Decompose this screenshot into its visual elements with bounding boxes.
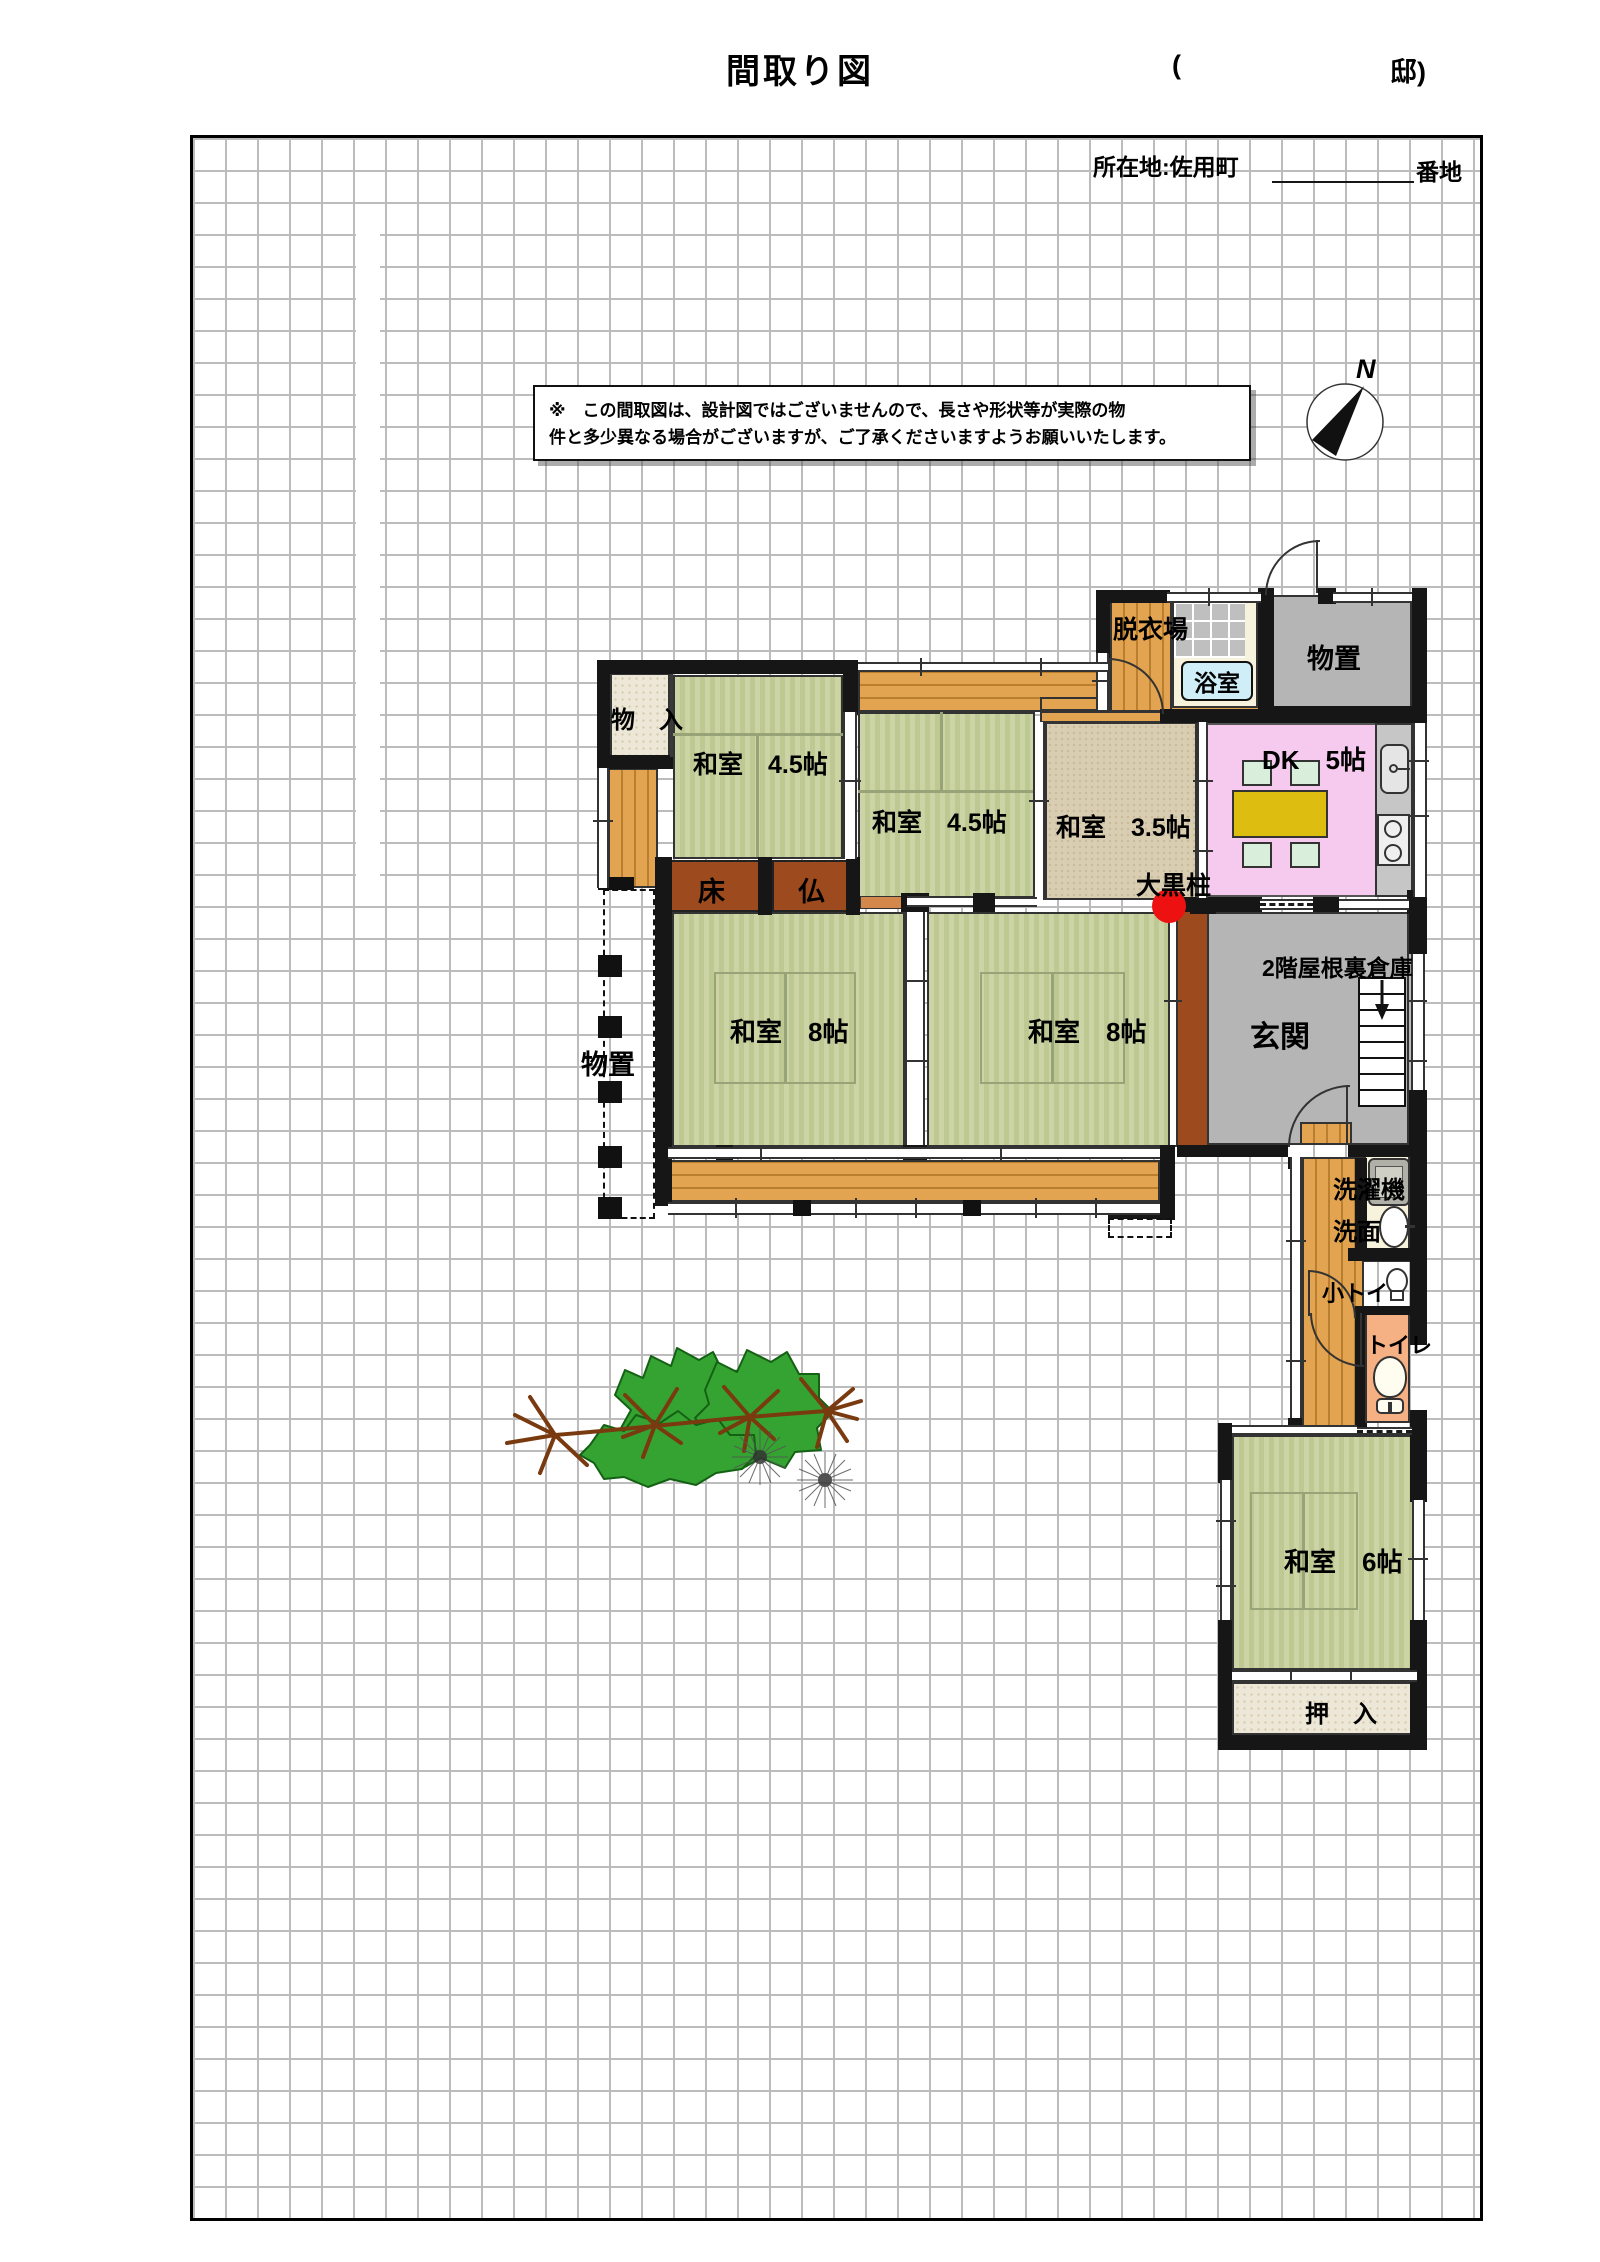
tick [1286,1360,1306,1362]
room-label-genkan: 玄関 [1250,1012,1310,1056]
toilet-bowl-icon [1373,1356,1407,1398]
tatami-mat-line [858,790,1035,793]
sink-faucet-arm [1398,768,1410,770]
door-leaf [1316,540,1318,593]
window-band [1232,1425,1357,1435]
sliding-door-band [995,897,1037,907]
banchi-label: 番地 [1416,153,1462,187]
compass: N [1300,350,1396,468]
room-label-washitsu6: 和室 6帖 [1284,1542,1402,1579]
sliding-door-band [1033,722,1045,900]
window-band [1413,723,1427,897]
sliding-door-band [1168,912,1178,1145]
room-label-text: 浴室 [1194,664,1240,698]
wall-segment [1410,1435,1427,1502]
wall-segment [1348,1145,1412,1157]
tick [1286,1240,1306,1242]
post [963,1200,981,1216]
door-sill [860,896,907,909]
tick [1371,588,1373,606]
label-butsudan: 仏 [798,870,825,909]
tick [1409,815,1429,817]
room-label-washitsu45-a: 和室 4.5帖 [693,745,828,781]
label-tokonoma: 床 [698,870,725,909]
sliding-door-band [907,896,973,907]
tick [735,1198,737,1218]
label-senmen: 洗面 [1333,1212,1381,1247]
floor-wood-strip-left [608,768,658,888]
grid-gap [356,230,380,895]
sliding-door-band [843,712,857,859]
tick [1407,1060,1427,1062]
door-leaf [1308,1270,1310,1316]
room-label-washitsu45-b: 和室 4.5帖 [872,803,1007,839]
wall-segment [973,893,995,912]
tick [915,1198,917,1218]
wall-segment [1096,590,1110,662]
window-band [1290,1157,1302,1418]
genkan-step-strip [1177,912,1207,1145]
window-band [597,768,609,888]
wall-segment [1410,1410,1427,1437]
wall-segment [1409,897,1427,954]
tick [1409,760,1429,762]
room-label-oshiire: 押 入 [1305,1694,1377,1729]
wall-segment [597,660,843,674]
room-label-washitsu8-a: 和室 8帖 [730,1012,848,1049]
owner-paren-open: ( [1172,50,1181,81]
veranda [668,1160,1160,1202]
address-blank-underline [1272,181,1414,183]
wall-segment [1410,1620,1427,1750]
sliding-door-dashes [1357,1430,1412,1433]
window-band [858,662,1108,672]
tick [1095,1198,1097,1218]
disclaimer-box: ※ この間取図は、設計図ではございませんので、長さや形状等が実際の物 件と多少異… [533,385,1251,461]
label-kotoilet: 小トイ [1322,1276,1388,1308]
tick [1000,1145,1002,1161]
window-band [1167,592,1261,603]
urinal-base [1390,1290,1404,1301]
chair [1242,842,1272,868]
page-title: 間取り図 [0,44,1600,93]
tick [855,1198,857,1218]
dining-table [1232,790,1328,838]
garden-trees-icon [495,1335,865,1510]
room-label-dk: DK 5帖 [1262,740,1366,777]
tatami-mat-line [940,712,943,792]
wall-segment [1218,1735,1427,1750]
window-band [1411,954,1425,1090]
room-label-yokushitsu: 浴室 [1181,661,1253,701]
window-band [1412,1500,1425,1620]
chair [1290,842,1320,868]
wall-segment [597,660,610,770]
wall-segment [1313,897,1339,912]
stove-burner-icon [1384,820,1402,838]
sink-faucet-icon [1389,764,1398,773]
tick [1350,1668,1352,1684]
room-label-toilet: トイレ [1366,1328,1432,1360]
tick [903,1060,927,1062]
tick [1408,1558,1428,1560]
label-daikokubashira: 大黒柱 [1136,866,1211,902]
disclaimer-line2: 件と多少異なる場合がございますが、ご了承くださいますようお願いいたします。 [549,424,1235,451]
wall-segment [843,660,858,715]
sliding-door-band [1232,1670,1417,1682]
toilet-tank-mark [1388,1402,1392,1412]
tick [1216,1520,1236,1522]
tick [903,980,927,982]
door-leaf [1360,1313,1362,1365]
location-label: 所在地:佐用町 [1093,148,1239,182]
wall-segment [597,755,673,769]
sliding-door-band [905,912,925,1145]
floor-plan-page: 間取り図 ( 邸) 所在地:佐用町 番地 ※ この間取図は、設計図ではございませ… [0,0,1600,2262]
tick [593,820,613,822]
compass-north-label: N [1356,354,1376,384]
tick [1029,800,1049,802]
tick [1164,1000,1182,1002]
tick [1290,1668,1292,1684]
room-label-washitsu35: 和室 3.5帖 [1056,808,1191,844]
tick [760,1145,762,1161]
wall-segment [1262,706,1427,723]
wall-segment [1258,588,1274,720]
wall-segment [1218,1620,1232,1750]
wall-segment [758,857,772,915]
tick [839,780,861,782]
tick [1216,1585,1236,1587]
sliding-door-dashes [1260,903,1313,906]
window-band [668,1202,1160,1215]
sliding-door-band [668,1147,1160,1159]
room-label-datsuijo: 脱衣場 [1113,610,1188,646]
label-attic: 2階屋根裏倉庫 [1262,949,1413,983]
label-sentakuki: 洗濯機 [1333,1170,1405,1205]
window-band [1220,1480,1232,1620]
window-band [1339,899,1409,910]
wall-segment [1218,1423,1232,1483]
room-label-monooki-top: 物置 [1307,637,1361,676]
owner-paren-close: 邸) [1390,50,1426,89]
disclaimer-line1: ※ この間取図は、設計図ではございませんので、長さや形状等が実際の物 [549,397,1235,424]
wall-segment [846,857,860,915]
tick [920,658,922,676]
door-leaf [1346,1085,1348,1145]
wall-segment [1409,1090,1427,1147]
room-label-monooki-left: 物置 [581,1043,635,1082]
step-stone [1108,1218,1172,1238]
wall-segment [1410,1140,1427,1345]
wall-segment [1160,709,1262,723]
room-label-washitsu8-b: 和室 8帖 [1028,1012,1146,1049]
wall-segment [1412,588,1427,710]
post [793,1200,811,1216]
tick [1407,1000,1427,1002]
door-leaf [1108,658,1110,712]
washbasin-tap [1405,1225,1415,1228]
tick [1193,780,1213,782]
wall-segment [1177,1145,1288,1157]
tick [1035,1198,1037,1218]
stove-burner-icon [1384,844,1402,862]
tick [1040,658,1042,676]
tick [1193,850,1213,852]
room-label-monoire: 物 入 [611,700,683,735]
tick [1208,588,1210,606]
stairs-down-arrow-icon [1374,980,1390,1022]
